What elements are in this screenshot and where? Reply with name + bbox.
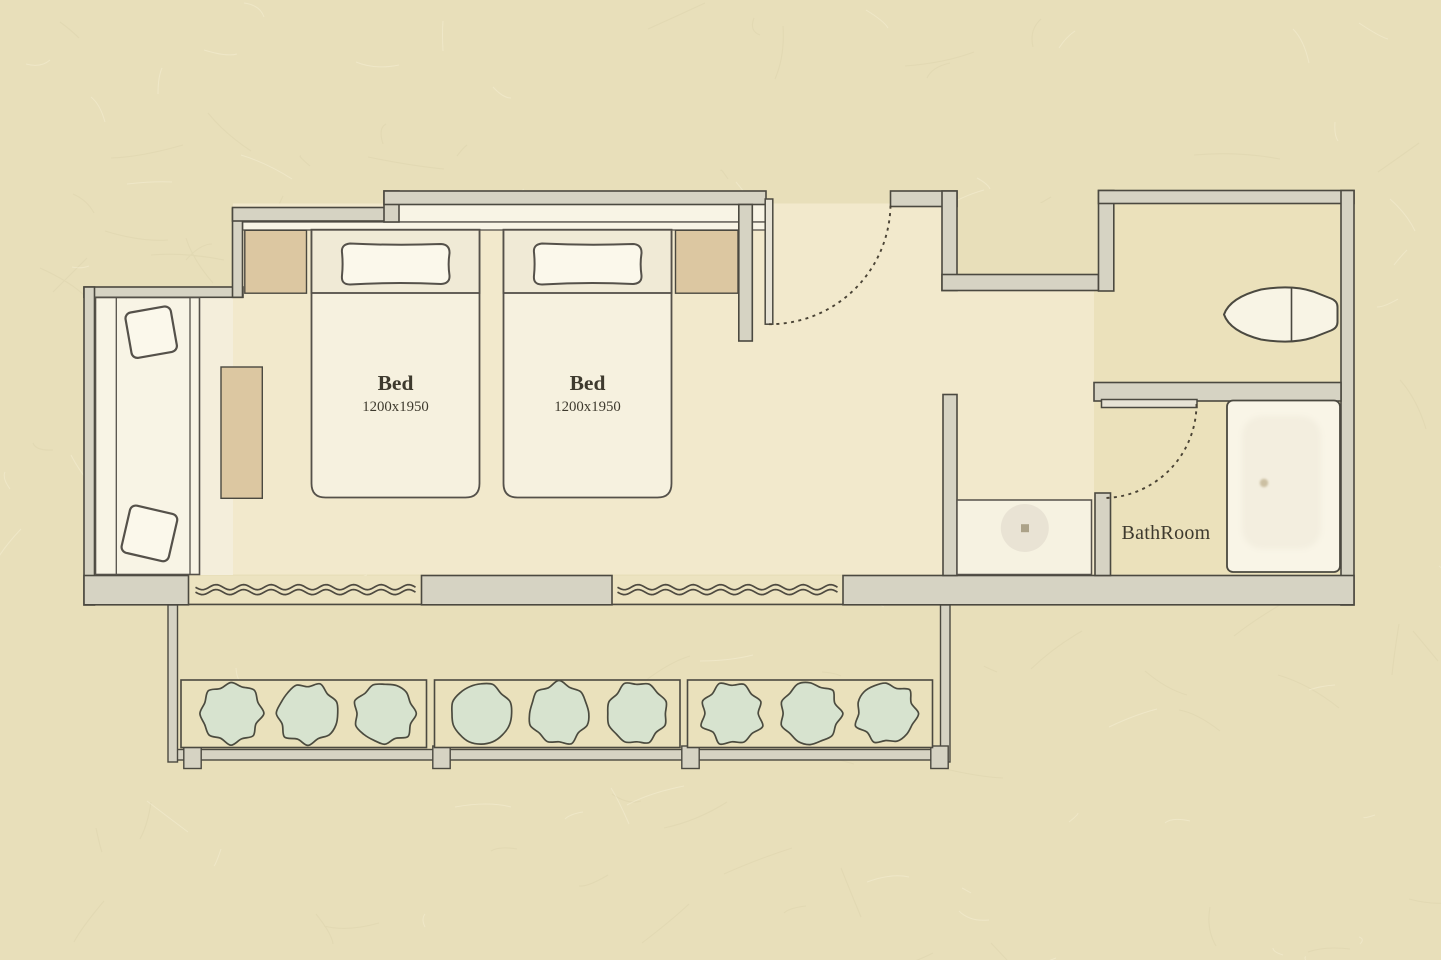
- svg-text:BathRoom: BathRoom: [1121, 522, 1210, 544]
- svg-text:1200x1950: 1200x1950: [362, 399, 429, 415]
- svg-text:Bed: Bed: [570, 371, 606, 395]
- svg-text:Bed: Bed: [378, 371, 414, 395]
- svg-text:1200x1950: 1200x1950: [554, 399, 621, 415]
